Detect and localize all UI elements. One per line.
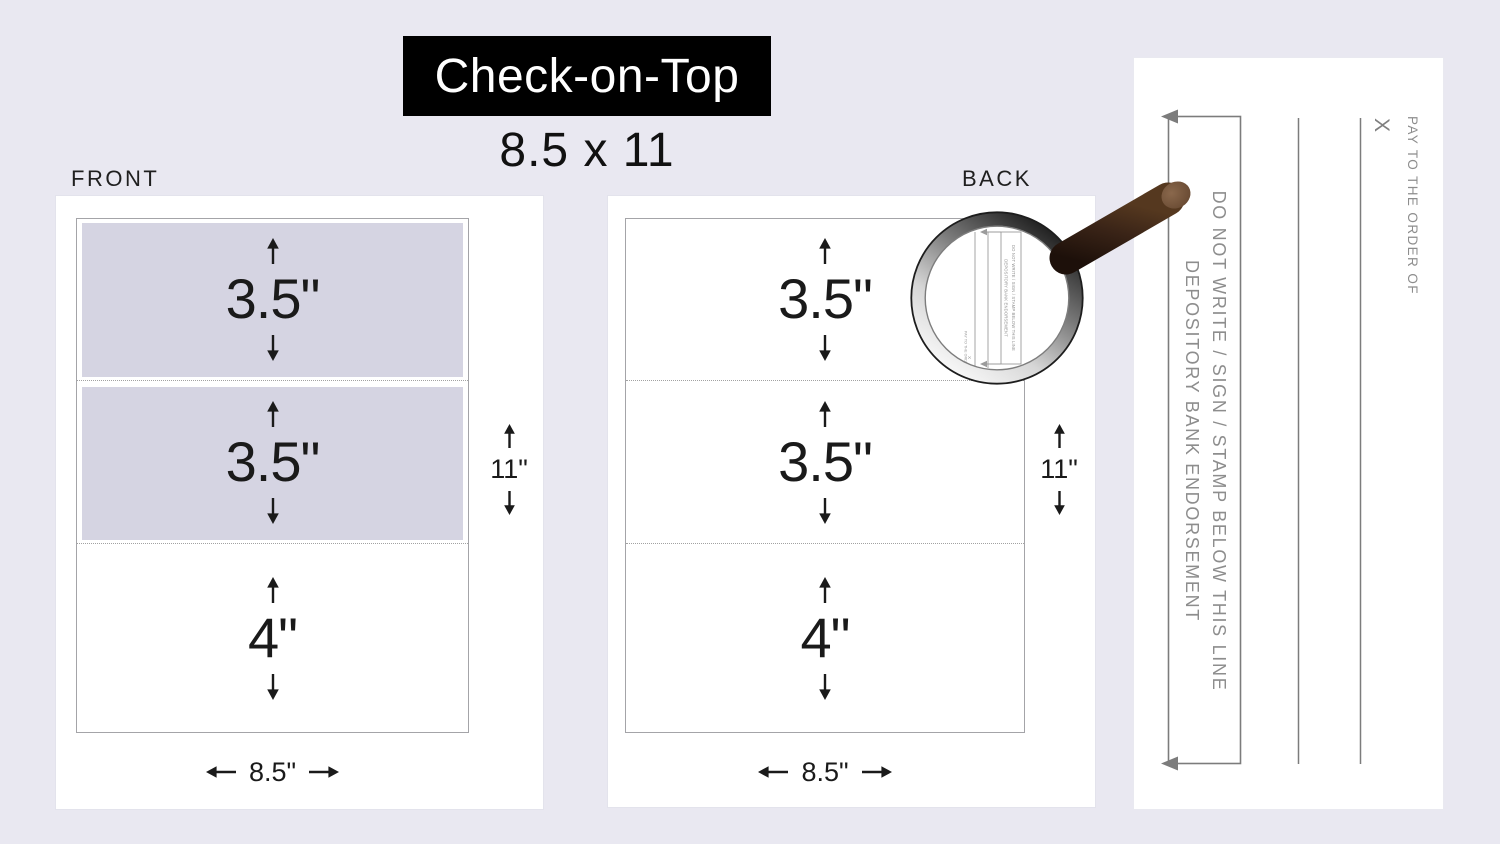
front-height-dimension-label: 11" [490, 454, 528, 485]
arrow-down-icon [503, 491, 516, 515]
back-width-dimension: 8.5" [608, 752, 1042, 792]
arrow-up-icon [266, 238, 280, 264]
front-height-dimension: 11" [484, 424, 534, 515]
front-section-3-height-label: 4" [248, 613, 297, 663]
arrow-down-icon [1053, 491, 1066, 515]
arrow-left-icon [1161, 757, 1178, 771]
mini-x-mark: X [967, 356, 972, 359]
arrow-up-icon [266, 577, 280, 603]
magnifier-handle [1066, 199, 1168, 258]
arrow-down-icon [266, 674, 280, 700]
front-width-dimension-label: 8.5" [249, 757, 296, 788]
check-on-top-diagram: { "header": { "banner_title": "Check-on-… [0, 0, 1500, 844]
front-section-1: 3.5" [78, 219, 467, 380]
arrow-left-icon [758, 765, 788, 779]
arrow-down-icon [266, 335, 280, 361]
front-section-2: 3.5" [78, 382, 467, 543]
arrow-up-icon [1053, 424, 1066, 448]
front-page-outline: 3.5" 3.5" 4" [76, 218, 469, 733]
back-width-dimension-label: 8.5" [801, 757, 848, 788]
front-section-3: 4" [78, 545, 467, 732]
sign-here-x-mark: X [1370, 114, 1392, 136]
front-section-1-height-label: 3.5" [226, 274, 320, 324]
magnifying-glass: DO NOT WRITE / SIGN / STAMP BELOW THIS L… [890, 168, 1220, 403]
back-section-3: 4" [627, 545, 1023, 732]
front-section-2-height-label: 3.5" [226, 437, 320, 487]
back-section-3-height-label: 4" [800, 613, 849, 663]
back-section-2: 3.5" [627, 382, 1023, 543]
sheet-size-label: 8.5 x 11 [403, 122, 771, 178]
arrow-down-icon [818, 335, 832, 361]
front-label: FRONT [71, 166, 159, 192]
arrow-up-icon [503, 424, 516, 448]
arrow-up-icon [818, 401, 832, 427]
back-section-1-height-label: 3.5" [778, 274, 872, 324]
front-width-dimension: 8.5" [56, 752, 489, 792]
arrow-right-icon [309, 765, 339, 779]
arrow-up-icon [266, 401, 280, 427]
pay-to-the-order-of-label: PAY TO THE ORDER OF [1402, 116, 1420, 290]
back-section-2-height-label: 3.5" [778, 437, 872, 487]
fold-line [77, 380, 468, 381]
arrow-down-icon [818, 498, 832, 524]
arrow-up-icon [818, 577, 832, 603]
front-card: 3.5" 3.5" 4" 11" 8.5" [55, 195, 544, 810]
back-height-dimension: 11" [1034, 424, 1084, 515]
arrow-left-icon [206, 765, 236, 779]
arrow-up-icon [818, 238, 832, 264]
arrow-right-icon [862, 765, 892, 779]
mini-warning-line-1: DO NOT WRITE / SIGN / STAMP BELOW THIS L… [1011, 245, 1016, 351]
mini-warning-line-2: DEPOSITORY BANK ENDORSEMENT [1004, 259, 1009, 337]
back-height-dimension-label: 11" [1040, 454, 1078, 485]
fold-line [77, 543, 468, 544]
arrow-left-icon [1161, 110, 1178, 124]
fold-line [626, 543, 1024, 544]
arrow-down-icon [818, 674, 832, 700]
arrow-down-icon [266, 498, 280, 524]
product-title-banner: Check-on-Top [403, 36, 771, 116]
